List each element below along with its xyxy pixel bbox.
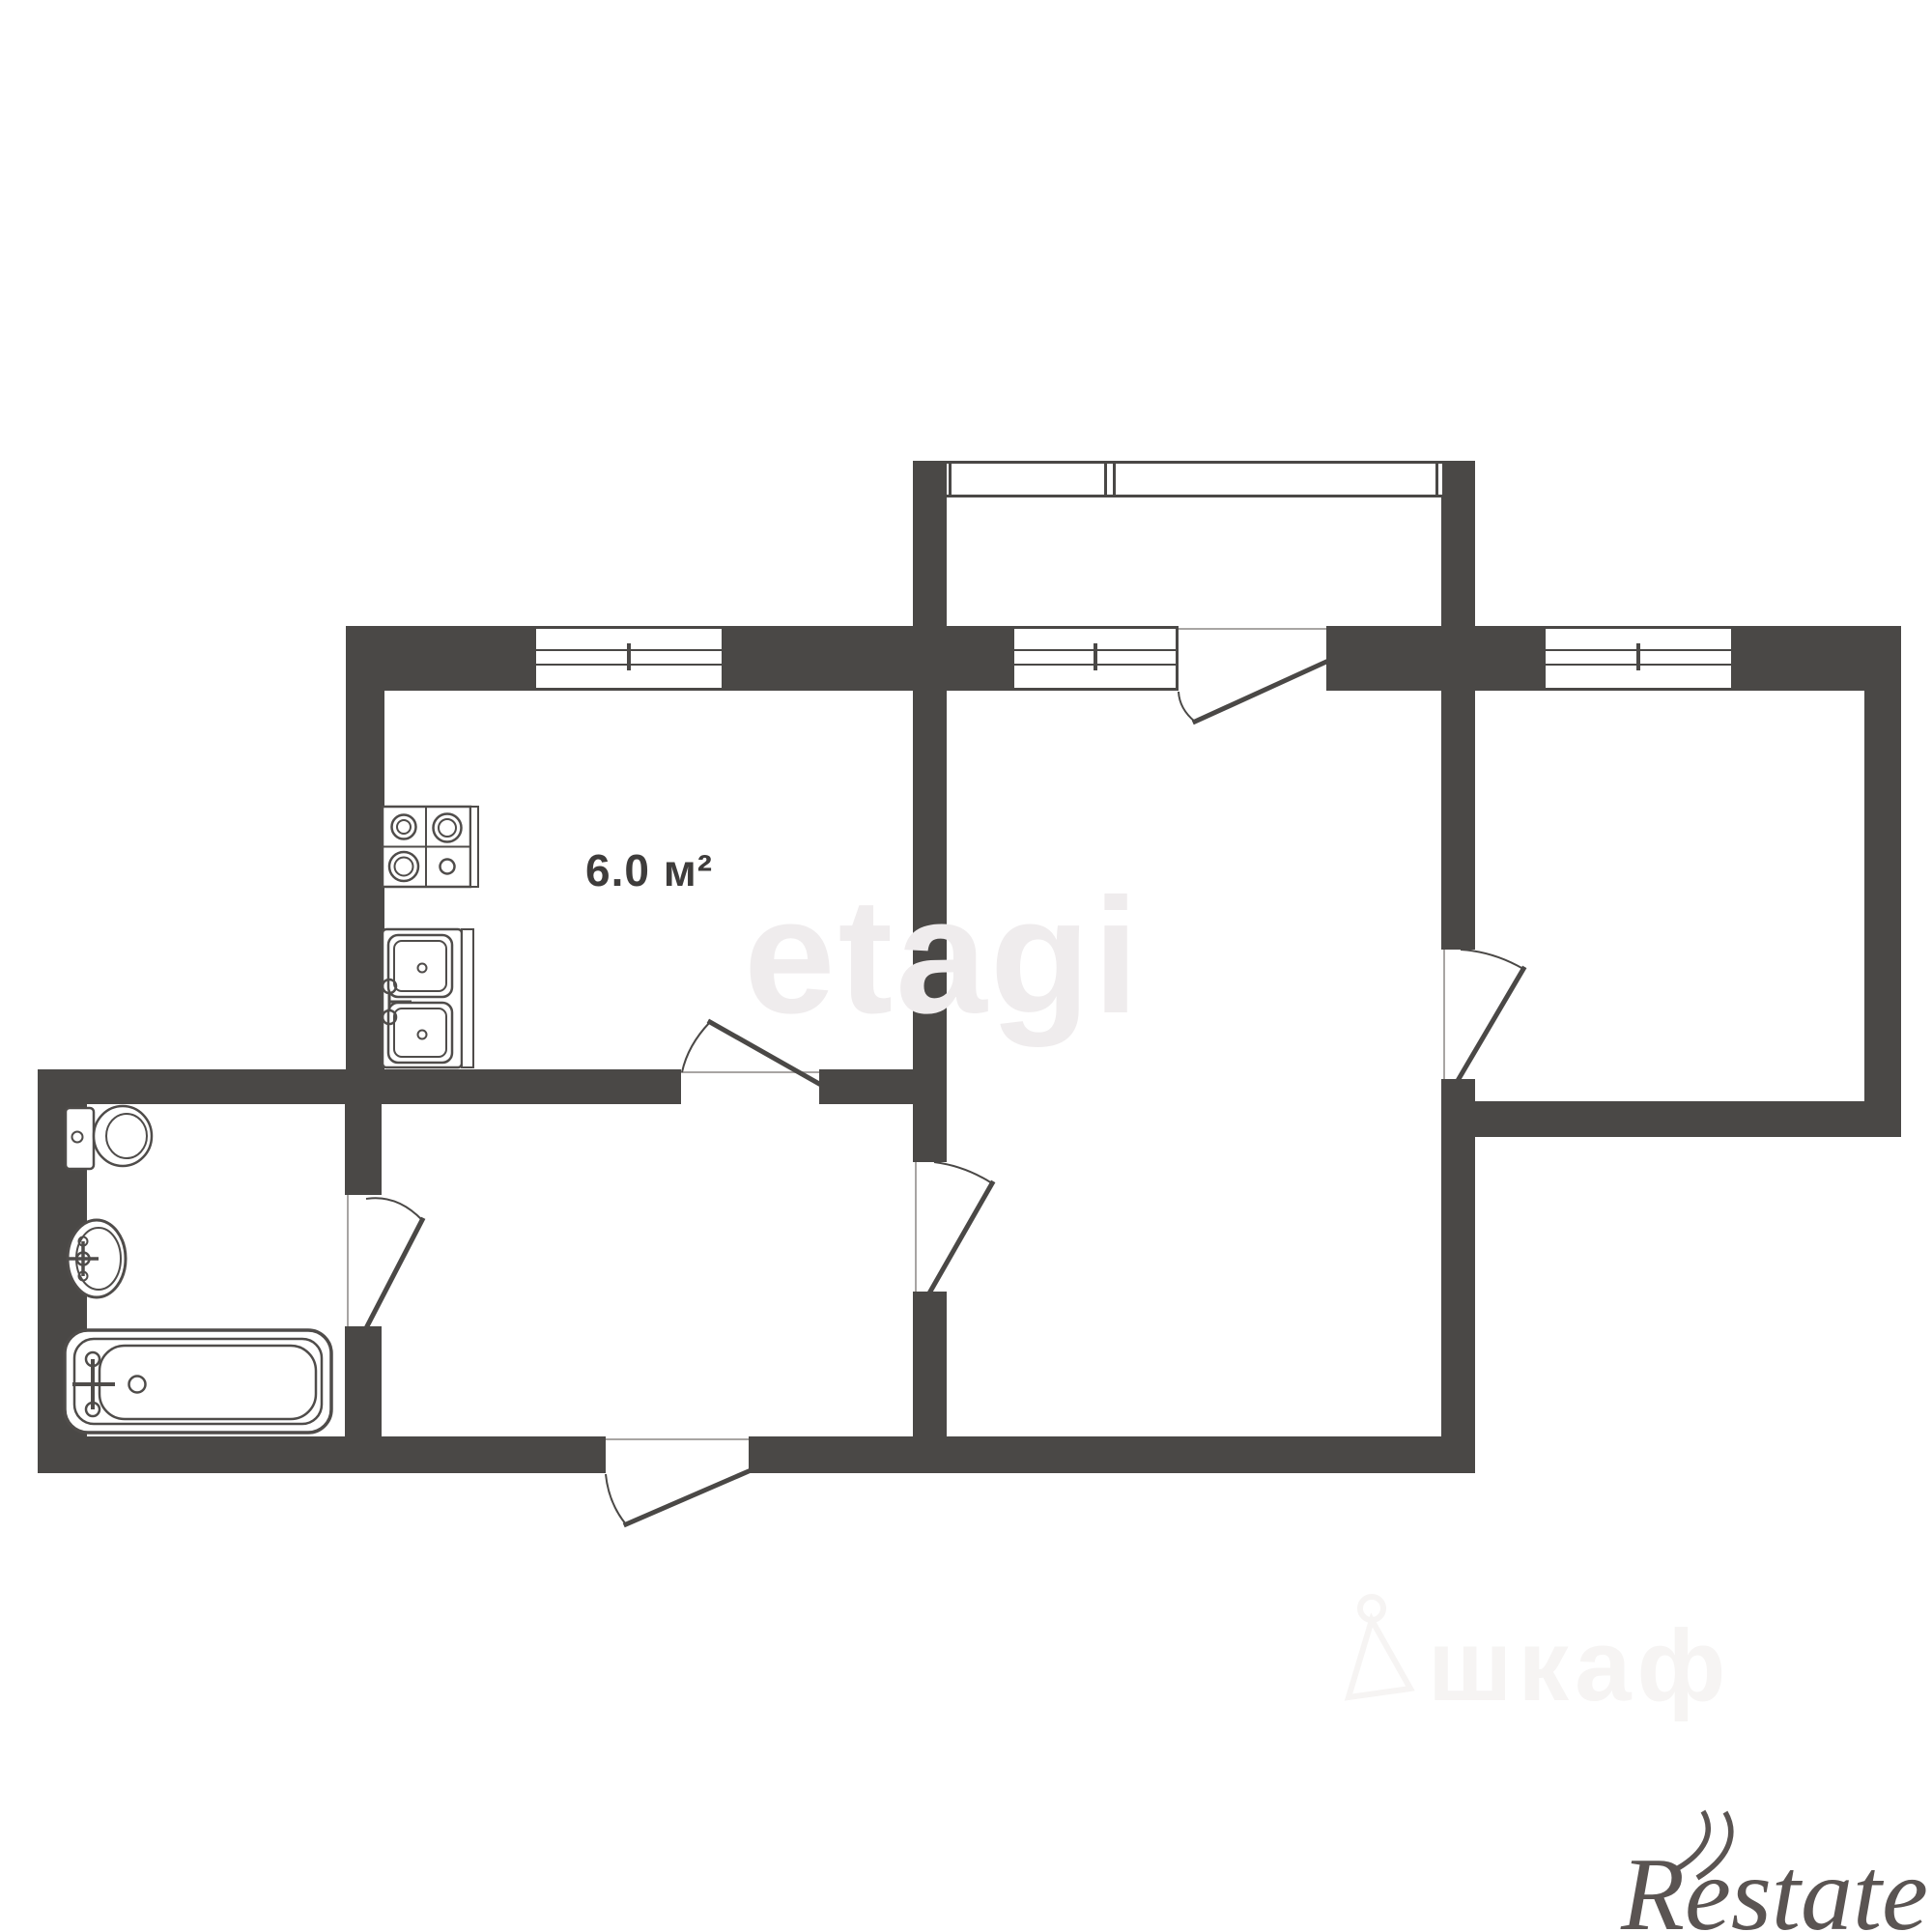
door-entrance (606, 1471, 749, 1524)
door-swing-arc (682, 1022, 710, 1072)
door-leaf (1195, 662, 1326, 722)
door-leaf (1459, 969, 1523, 1079)
door-leaf (367, 1220, 422, 1326)
room-area-label: 6.0 м² (585, 844, 713, 896)
watermark-closet: шкаф (1428, 1615, 1731, 1717)
watermark-etagi: etagi (744, 874, 1142, 1038)
hanger-icon (1349, 1597, 1410, 1697)
door-balcony (1179, 662, 1326, 722)
door-swing-arc (934, 1162, 992, 1183)
toilet (66, 1106, 152, 1169)
door-bathroom (366, 1198, 422, 1326)
door-leaf (626, 1471, 749, 1524)
washbasin (68, 1220, 126, 1297)
door-bedroom (1459, 950, 1523, 1079)
kitchen-sink (383, 929, 473, 1067)
bathtub (65, 1330, 331, 1433)
door-swing-arc (1179, 692, 1195, 722)
door-swing-arc (366, 1198, 422, 1220)
stove (383, 807, 478, 887)
door-swing-arc (606, 1474, 626, 1524)
door-leaf (930, 1183, 992, 1292)
floor-plan: 6.0 м² etagi шкаф Restate (0, 0, 1932, 1932)
door-swing-arc (1461, 950, 1523, 969)
door-hall-living (930, 1162, 992, 1292)
agency-logo-text: Restate (1621, 1843, 1928, 1932)
